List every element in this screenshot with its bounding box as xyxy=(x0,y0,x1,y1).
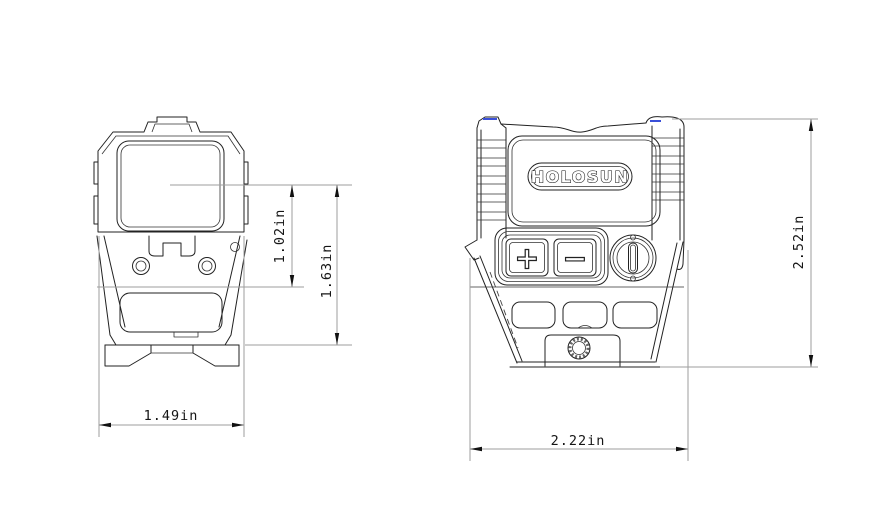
holosun-optic-drawing: HOLOSUN + − xyxy=(0,0,891,526)
front-view xyxy=(94,117,248,366)
mount-wings xyxy=(97,236,247,345)
battery-cap xyxy=(610,235,656,281)
side-view: HOLOSUN + − xyxy=(465,117,684,367)
side-lower-recesses xyxy=(512,302,657,328)
mount-screw-left xyxy=(133,258,150,275)
wing-pivot xyxy=(231,243,240,252)
mount-recess xyxy=(120,293,222,332)
dim-text-lens-to-base: 1.02in xyxy=(272,209,288,264)
dim-text-side-length: 2.22in xyxy=(551,433,606,449)
lens-window-outer xyxy=(117,141,224,231)
side-hidden-edge xyxy=(490,272,518,348)
side-right-serrations xyxy=(652,138,684,200)
brightness-down-button: − xyxy=(554,239,596,277)
dim-text-side-height: 2.52in xyxy=(791,215,807,270)
dim-text-lens-to-rail: 1.63in xyxy=(319,244,335,299)
mount-recess-step xyxy=(174,332,198,337)
mount-bracket xyxy=(149,236,195,256)
minus-icon: − xyxy=(562,242,587,277)
brightness-up-button: + xyxy=(506,239,548,277)
plus-icon: + xyxy=(514,242,539,277)
dimension-arrows xyxy=(99,119,813,451)
side-left-lower-hook xyxy=(465,240,479,260)
rail-clamp xyxy=(105,345,239,366)
cad-drawing-page: HOLOSUN + − xyxy=(0,0,891,526)
mount-screw-right xyxy=(199,258,216,275)
dimension-annotations: 1.02in 1.63in 1.49in 2.22in 2.52in xyxy=(97,119,818,461)
bottom-tab xyxy=(545,335,620,366)
side-top-edge xyxy=(501,123,646,132)
dim-text-front-width: 1.49in xyxy=(144,408,199,424)
front-width-extensions xyxy=(99,236,244,437)
side-right-block xyxy=(652,126,684,269)
side-bottom-edge xyxy=(510,362,660,367)
front-body-outline xyxy=(98,117,244,232)
holosun-logo: HOLOSUN xyxy=(531,168,630,187)
lens-window-inner xyxy=(121,145,220,227)
front-top-bump-inner xyxy=(152,124,192,132)
